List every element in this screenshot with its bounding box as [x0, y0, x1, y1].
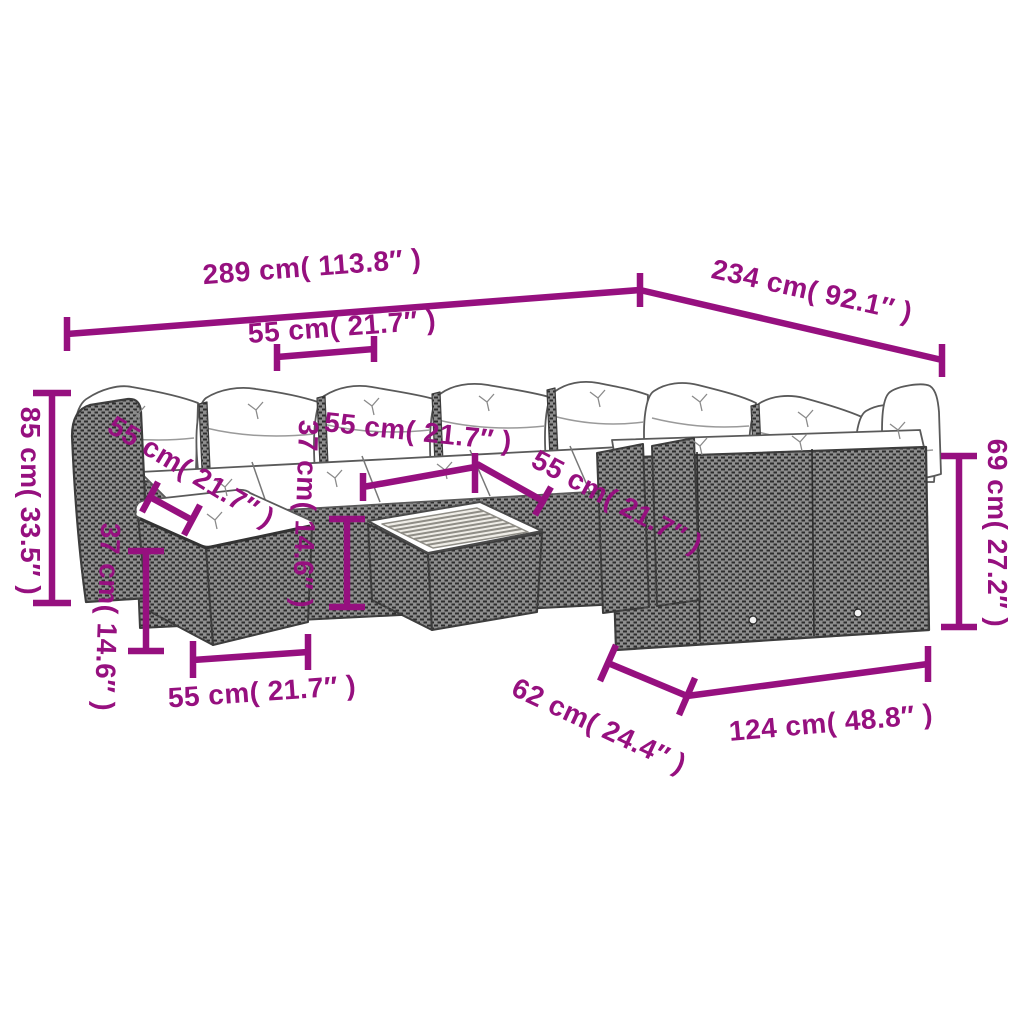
- dim-label-right-back-height: 69 cm( 27.2″ ): [983, 439, 1011, 628]
- dim-line-right-section-length: [687, 646, 928, 696]
- dim-label-footstool-height: 37 cm( 14.6″ ): [90, 522, 125, 711]
- product-dimension-diagram: 289 cm( 113.8″ ) 234 cm( 92.1″ ) 55 cm( …: [0, 0, 1024, 1024]
- coffee-table: [368, 502, 542, 630]
- sofa-drawing: [72, 382, 941, 650]
- dim-label-seat-height: 37 cm( 14.6″ ): [288, 419, 323, 608]
- dim-line-right-back-height: [941, 456, 977, 627]
- dim-line-table-depth: [600, 645, 695, 715]
- dim-label-back-height: 85 cm( 33.5″ ): [16, 407, 44, 596]
- clip-hole: [749, 616, 757, 624]
- sofa-set-illustration: [0, 0, 1024, 1024]
- clip-hole: [854, 609, 862, 617]
